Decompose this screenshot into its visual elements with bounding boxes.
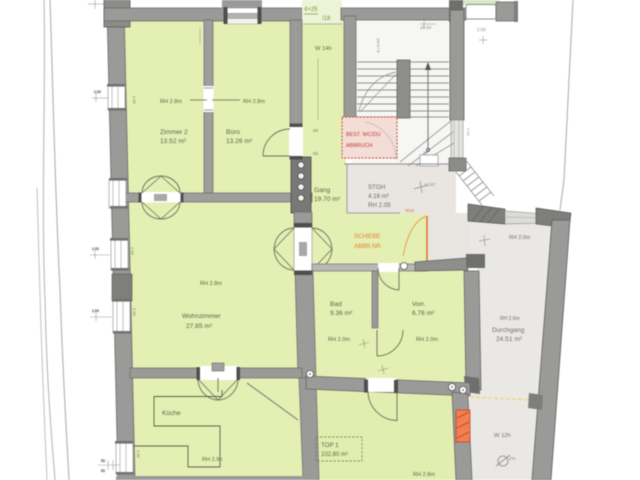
svg-text:6.76 m²: 6.76 m² [412,310,435,317]
svg-text:102.80 m²: 102.80 m² [321,452,348,458]
svg-text:W 12h: W 12h [494,433,511,439]
svg-text:RH 2.05: RH 2.05 [368,202,391,209]
svg-text:1.00: 1.00 [132,96,137,105]
svg-text:RH 2.8m: RH 2.8m [200,281,222,287]
svg-text:TOP 1: TOP 1 [321,442,339,449]
svg-text:ABBR.NR: ABBR.NR [354,244,381,250]
svg-text:68: 68 [313,151,319,156]
svg-text:RH 2.8m: RH 2.8m [413,472,435,478]
svg-text:13.52 m²: 13.52 m² [160,138,187,145]
svg-text:50: 50 [101,459,105,463]
svg-text:RH 2.0m: RH 2.0m [328,337,350,343]
svg-text:STGH: STGH [368,184,385,191]
svg-text:20: 20 [423,150,428,155]
svg-text:ABBRUCH: ABBRUCH [346,143,372,149]
svg-text:Zimmer 2: Zimmer 2 [160,129,188,136]
svg-text:1.00: 1.00 [136,450,141,459]
svg-text:4.16 m²: 4.16 m² [368,193,389,200]
svg-text:27.85 m²: 27.85 m² [186,323,213,330]
svg-text:Bad: Bad [330,301,342,308]
svg-text:9.36 m²: 9.36 m² [330,310,353,317]
svg-text:1.64: 1.64 [466,128,471,137]
svg-text:19.70 m²: 19.70 m² [314,196,341,203]
svg-text:Gang: Gang [314,187,330,194]
svg-text:RH 2.8m: RH 2.8m [243,99,265,105]
svg-text:Vorr.: Vorr. [412,301,426,308]
svg-text:68: 68 [313,128,319,133]
svg-text:4×25: 4×25 [304,7,318,13]
svg-text:+2.87: +2.87 [424,182,436,187]
svg-text:2.50: 2.50 [477,27,486,32]
svg-text:W16: W16 [405,208,415,213]
svg-text:RH 2.6m: RH 2.6m [500,316,520,322]
svg-text:/18: /18 [322,16,331,22]
svg-text:RH 2.8m: RH 2.8m [160,99,182,105]
svg-text:24.51 m²: 24.51 m² [496,336,523,343]
svg-text:1.00: 1.00 [132,308,137,317]
svg-text:±0.00: ±0.00 [420,25,432,30]
svg-text:SCHIEBE: SCHIEBE [354,234,380,240]
svg-text:1.00: 1.00 [92,309,99,313]
svg-text:W 14h: W 14h [315,46,332,52]
svg-text:1.00: 1.00 [130,247,135,256]
svg-text:RH 2.9h: RH 2.9h [202,457,223,463]
svg-text:13.26 m²: 13.26 m² [226,138,253,145]
svg-text:16×17.6: 16×17.6 [376,38,381,53]
svg-text:1.00: 1.00 [94,90,101,94]
svg-text:BEST. WC/DU: BEST. WC/DU [346,132,381,138]
svg-text:2%: 2% [509,456,516,461]
svg-text:Büro: Büro [226,129,240,136]
svg-text:RH 2.0m: RH 2.0m [416,337,438,343]
svg-text:Küche: Küche [162,410,181,417]
svg-text:RH 2.0m: RH 2.0m [509,235,531,241]
svg-text:Wohnzimmer: Wohnzimmer [182,313,222,320]
svg-text:1.00: 1.00 [92,247,99,251]
svg-text:Durchgang: Durchgang [492,327,525,334]
svg-text:50: 50 [101,469,105,473]
